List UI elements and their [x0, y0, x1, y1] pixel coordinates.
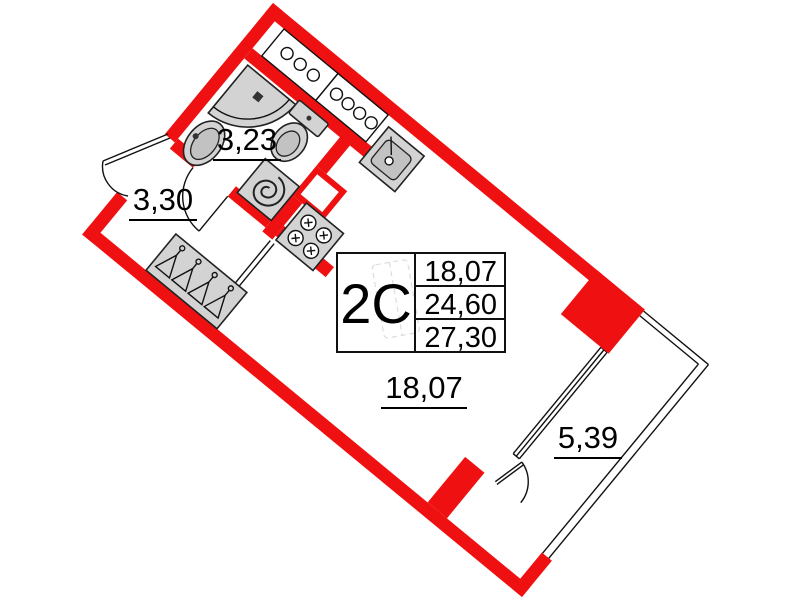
unit-area-without-balcony: 24,60: [424, 289, 497, 321]
balcony-door: [495, 457, 541, 503]
hallway-area-label: 3,30: [133, 182, 193, 217]
wall-pylon: [561, 270, 645, 353]
floor-plan-canvas: 2С 18,07 24,60 27,30 3,23 3,30 18,07 5,3…: [0, 0, 800, 600]
wall-balcony-pier: [428, 457, 485, 518]
wall-balcony-corner: [512, 553, 552, 598]
unit-living-area: 18,07: [424, 256, 497, 288]
unit-type-label: 2С: [340, 272, 412, 335]
unit-total-area: 27,30: [424, 322, 497, 354]
balcony-area-label: 5,39: [558, 420, 618, 455]
bathroom-area-label: 3,23: [217, 122, 277, 157]
floor-plan-svg: 2С 18,07 24,60 27,30 3,23 3,30 18,07 5,3…: [0, 0, 800, 600]
living-room-area-label: 18,07: [385, 370, 463, 405]
unit-info-table: 2С 18,07 24,60 27,30: [337, 253, 505, 354]
